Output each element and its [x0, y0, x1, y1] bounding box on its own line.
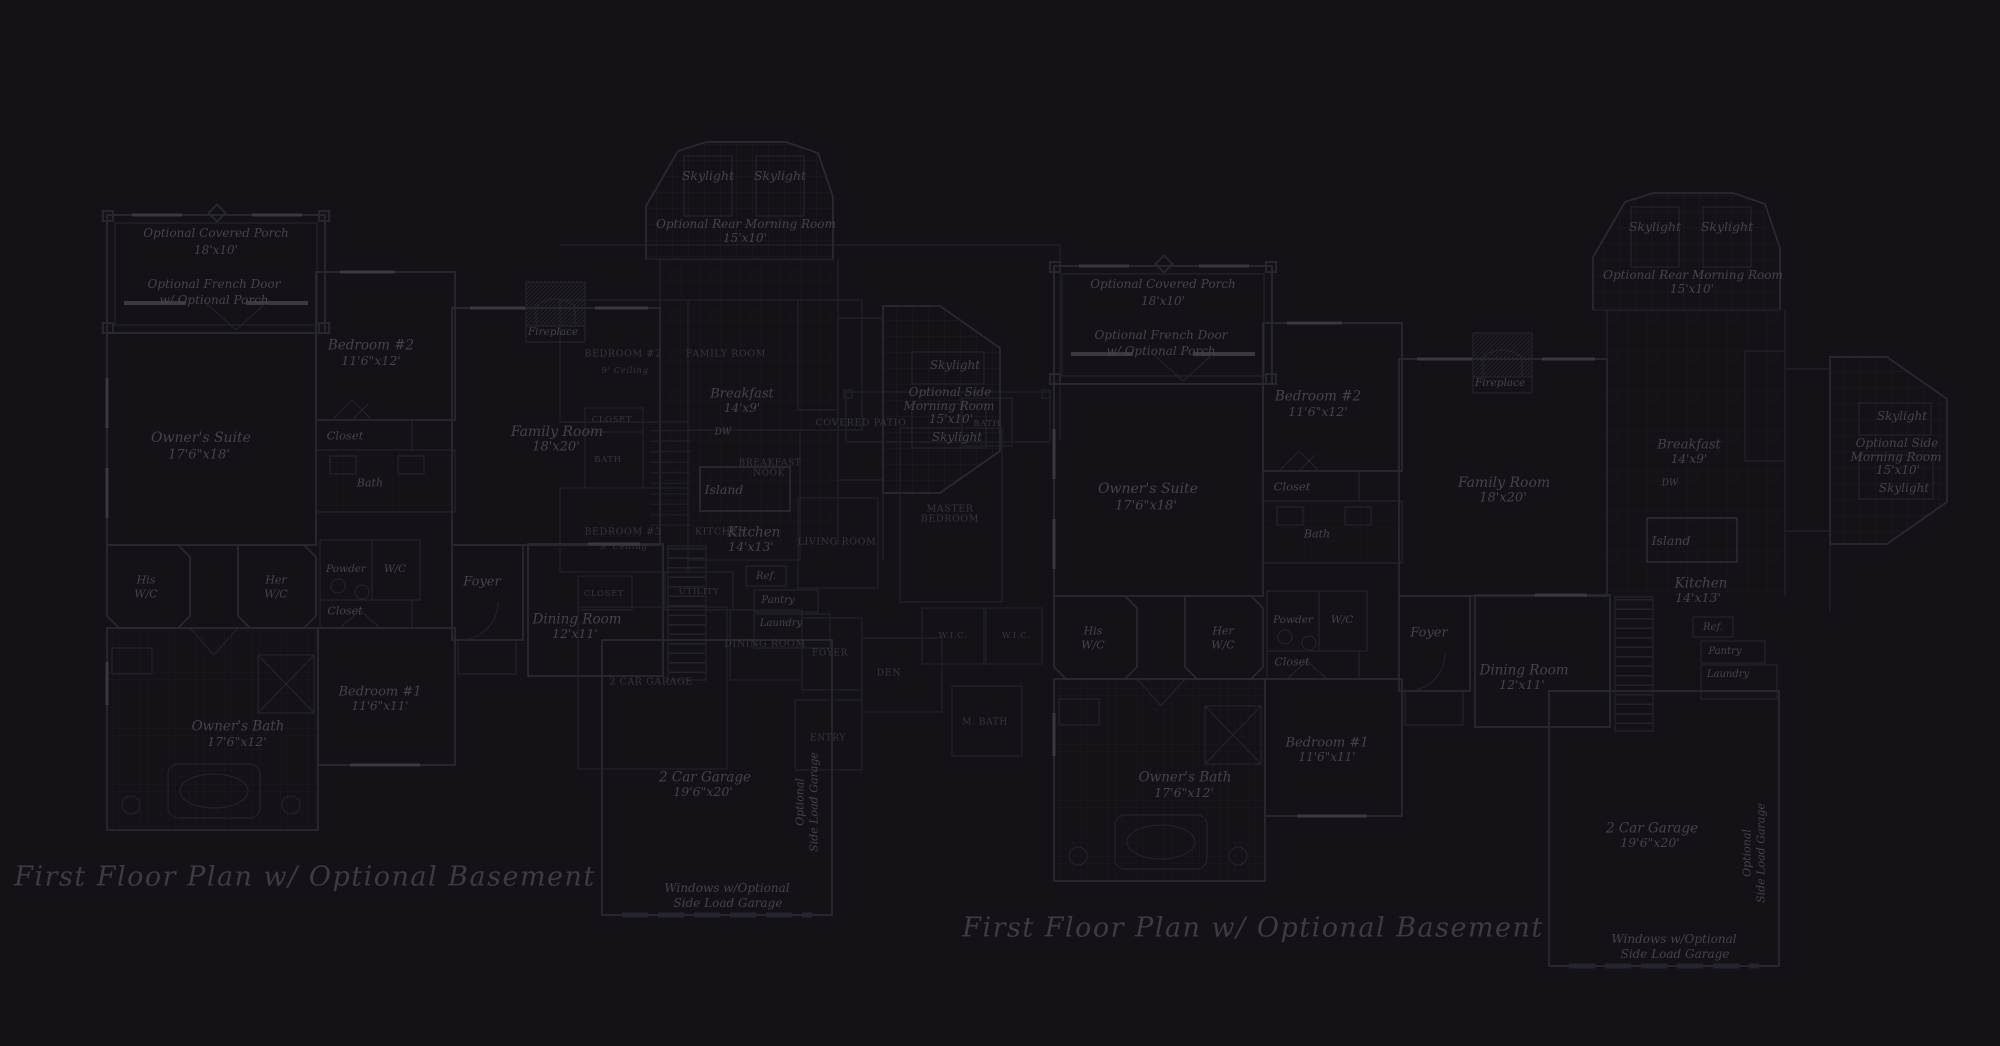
room-label: Closet	[327, 430, 364, 442]
room-label: Optional French Door	[1095, 329, 1228, 341]
room-label: 9' Ceiling	[600, 543, 647, 552]
blueprint-page: { "colors":{ "background":"#141216","wal…	[0, 0, 2000, 1046]
room-label: Pantry	[1708, 647, 1741, 657]
room-label: Bedroom #1	[338, 686, 421, 699]
room-label: 15'x10'	[929, 413, 973, 425]
room-label: DW	[1662, 480, 1678, 489]
room-label: NOOK	[753, 470, 785, 479]
room-label: 11'6"x11'	[1298, 751, 1355, 763]
room-label: Her	[1212, 626, 1233, 637]
room-label: Owner's Suite	[151, 431, 251, 445]
room-label: Optional	[1742, 829, 1753, 877]
room-label: Island	[1652, 535, 1691, 548]
room-label: W/C	[134, 589, 157, 600]
floorplan-left	[103, 142, 1000, 915]
room-label: BEDROOM #3	[584, 527, 661, 537]
room-label: 11'6"x12'	[1288, 406, 1347, 419]
room-label: LIVING ROOM	[798, 537, 877, 547]
room-label: 9' Ceiling	[601, 367, 648, 376]
room-label: 2 Car Garage	[659, 771, 751, 785]
room-label: 14'x9'	[1671, 453, 1707, 465]
room-label: BATH	[594, 456, 621, 465]
room-label: Optional Rear Morning Room	[656, 218, 836, 230]
room-label: Morning Room	[1851, 451, 1942, 463]
room-label: 14'x13'	[1675, 592, 1721, 605]
room-label: Skylight	[1701, 221, 1753, 234]
room-label: Optional Rear Morning Room	[1603, 269, 1783, 281]
room-label: BEDROOM #2	[584, 349, 661, 359]
room-label: His	[137, 575, 156, 586]
room-label: BATH	[973, 420, 1000, 429]
room-label: Optional Covered Porch	[143, 227, 289, 239]
room-label: CLOSET	[584, 590, 624, 599]
room-label: Optional	[795, 778, 806, 826]
room-label: Powder	[1273, 615, 1313, 626]
room-label: Ref.	[1703, 623, 1723, 633]
room-label: M. BATH	[962, 719, 1008, 728]
room-label: Skylight	[1629, 221, 1681, 234]
room-label: Foyer	[463, 576, 500, 589]
room-label: 2 Car Garage	[1606, 822, 1698, 836]
room-label: 2 CAR GARAGE	[609, 677, 693, 687]
room-label: 12'x11'	[552, 628, 598, 641]
room-label: W.I.C.	[1002, 632, 1031, 641]
room-label: w/ Optional Porch	[1106, 345, 1215, 357]
room-label: Closet	[1274, 657, 1309, 668]
room-label: 15'x10'	[1670, 283, 1714, 295]
room-label: 18'x10'	[194, 244, 238, 256]
room-label: Side Load Garage	[674, 897, 783, 909]
room-label: Bath	[357, 478, 383, 489]
room-label: Windows w/Optional	[664, 882, 789, 894]
room-label: Skylight	[932, 431, 982, 443]
room-label: Bedroom #2	[1275, 390, 1361, 404]
room-label: Skylight	[682, 170, 734, 183]
room-label: Ref.	[756, 572, 776, 582]
room-label: Side Load Garage	[1621, 948, 1730, 960]
room-label: W/C	[1211, 640, 1234, 651]
room-label: DEN	[877, 668, 902, 678]
room-label: 18'x20'	[532, 441, 580, 454]
room-label: 18'x10'	[1141, 295, 1185, 307]
room-label: Island	[705, 484, 744, 497]
room-label: Laundry	[1707, 670, 1749, 680]
room-label: Pantry	[761, 596, 794, 606]
room-label: FOYER	[812, 650, 848, 659]
room-label: 17'6"x18'	[168, 449, 230, 462]
room-label: 12'x11'	[1499, 679, 1545, 692]
room-label: 11'6"x12'	[341, 355, 400, 368]
room-label: Optional Side	[1856, 437, 1939, 449]
room-label: Owner's Bath	[192, 720, 285, 734]
room-label: Side Load Garage	[809, 752, 820, 852]
room-label: Laundry	[760, 619, 802, 629]
room-label: W.I.C.	[939, 632, 968, 641]
room-label: 17'6"x18'	[1115, 500, 1177, 513]
room-label: Bedroom #2	[328, 339, 414, 353]
room-label: Foyer	[1410, 627, 1447, 640]
room-label: 19'6"x20'	[1620, 837, 1679, 850]
room-label: W/C	[384, 564, 406, 575]
room-label: Family Room	[1458, 476, 1550, 490]
room-label: ENTRY	[810, 735, 846, 744]
plan-title-right: First Floor Plan w/ Optional Basement	[962, 913, 1544, 944]
room-label: Owner's Suite	[1098, 482, 1198, 496]
room-label: Optional French Door	[148, 278, 281, 290]
room-label: BREAKFAST	[739, 460, 802, 469]
room-label: Dining Room	[532, 613, 621, 627]
room-label: 15'x10'	[1876, 464, 1920, 476]
room-label: Closet	[327, 606, 362, 617]
room-label: W/C	[1081, 640, 1104, 651]
room-label: 17'6"x12'	[207, 736, 266, 749]
room-label: Closet	[1274, 481, 1311, 493]
room-label: W/C	[1331, 615, 1353, 626]
room-label: Fireplace	[1475, 378, 1525, 389]
room-label: FAMILY ROOM	[686, 349, 766, 359]
room-label: Family Room	[511, 425, 603, 439]
room-label: Skylight	[1877, 410, 1927, 422]
room-label: 17'6"x12'	[1154, 787, 1213, 800]
room-label: Her	[265, 575, 286, 586]
room-label: His	[1084, 626, 1103, 637]
room-label: Skylight	[1879, 482, 1929, 494]
floorplan-right	[1050, 193, 1947, 966]
room-label: 14'x13'	[728, 541, 774, 554]
room-label: BEDROOM	[921, 514, 979, 524]
room-label: Bath	[1304, 529, 1330, 540]
room-label: Optional Covered Porch	[1090, 278, 1236, 290]
plan-title-left: First Floor Plan w/ Optional Basement	[14, 862, 596, 893]
room-label: CLOSET	[592, 416, 632, 425]
room-label: Breakfast	[710, 388, 774, 401]
room-label: Kitchen	[1675, 577, 1728, 591]
room-label: Side Load Garage	[1756, 803, 1767, 903]
room-label: KITCHEN	[695, 527, 747, 537]
room-label: COVERED PATIO	[816, 418, 907, 428]
room-label: Morning Room	[904, 400, 995, 412]
room-label: W/C	[264, 589, 287, 600]
room-label: w/ Optional Porch	[159, 294, 268, 306]
room-label: 14'x9'	[724, 402, 760, 414]
room-label: Bedroom #1	[1285, 737, 1368, 750]
room-label: Powder	[326, 564, 366, 575]
room-label: Dining Room	[1479, 664, 1568, 678]
room-label: Owner's Bath	[1139, 771, 1232, 785]
room-label: 19'6"x20'	[673, 786, 732, 799]
room-label: 11'6"x11'	[351, 700, 408, 712]
room-label: 18'x20'	[1479, 492, 1527, 505]
room-label: DW	[715, 429, 731, 438]
room-label: Skylight	[754, 170, 806, 183]
room-label: 15'x10'	[723, 232, 767, 244]
room-label: Optional Side	[909, 386, 992, 398]
room-label: Breakfast	[1657, 439, 1721, 452]
room-label: UTILITY	[679, 588, 720, 597]
room-label: Windows w/Optional	[1611, 933, 1736, 945]
room-label: Fireplace	[528, 327, 578, 338]
room-label: Skylight	[930, 359, 980, 371]
room-label: DINING ROOM	[724, 639, 805, 649]
